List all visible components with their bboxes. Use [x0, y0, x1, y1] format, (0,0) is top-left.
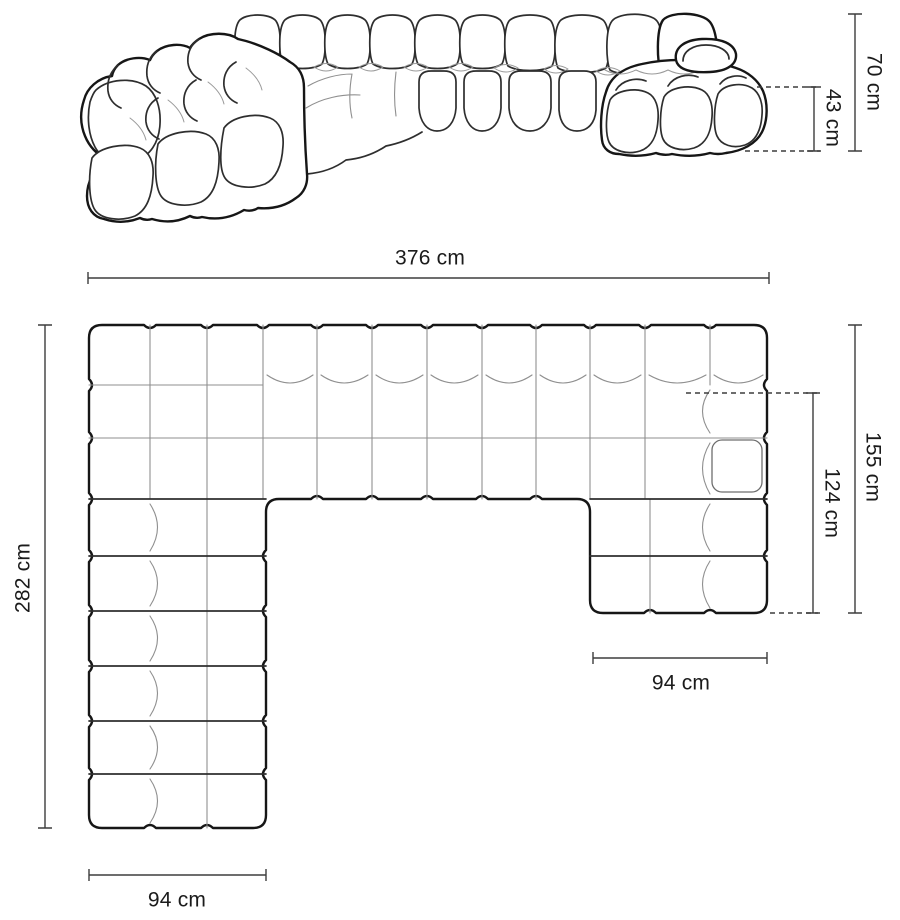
dim-line-module-width — [89, 869, 266, 881]
plan-outline — [89, 325, 767, 828]
front-seat-cushions — [306, 71, 596, 174]
dim-line-total-depth — [38, 325, 52, 828]
dim-label-chaise-length: 124 cm — [822, 468, 843, 538]
dim-line-total-height — [848, 14, 862, 151]
front-left-chaise — [81, 34, 307, 222]
dim-line-chaise-width — [593, 652, 767, 664]
dim-label-chaise-width: 94 cm — [652, 673, 710, 694]
dim-label-total-height: 70 cm — [864, 53, 885, 111]
dim-label-module-width: 94 cm — [148, 890, 206, 911]
dim-label-total-depth: 282 cm — [13, 543, 34, 613]
front-view-illustration — [81, 14, 862, 284]
dim-label-seat-height: 43 cm — [823, 89, 844, 147]
top-view-illustration — [38, 325, 862, 881]
sofa-dimension-diagram: 70 cm 43 cm 376 cm 282 cm 155 cm 124 cm … — [0, 0, 900, 920]
dim-line-seat-height — [807, 87, 821, 151]
dim-line-right-depth — [848, 325, 862, 613]
dim-line-total-width — [88, 272, 769, 284]
dim-label-right-depth: 155 cm — [863, 432, 884, 502]
dim-line-chaise-length — [806, 393, 820, 613]
dim-label-total-width: 376 cm — [395, 248, 465, 269]
diagram-canvas — [0, 0, 900, 920]
